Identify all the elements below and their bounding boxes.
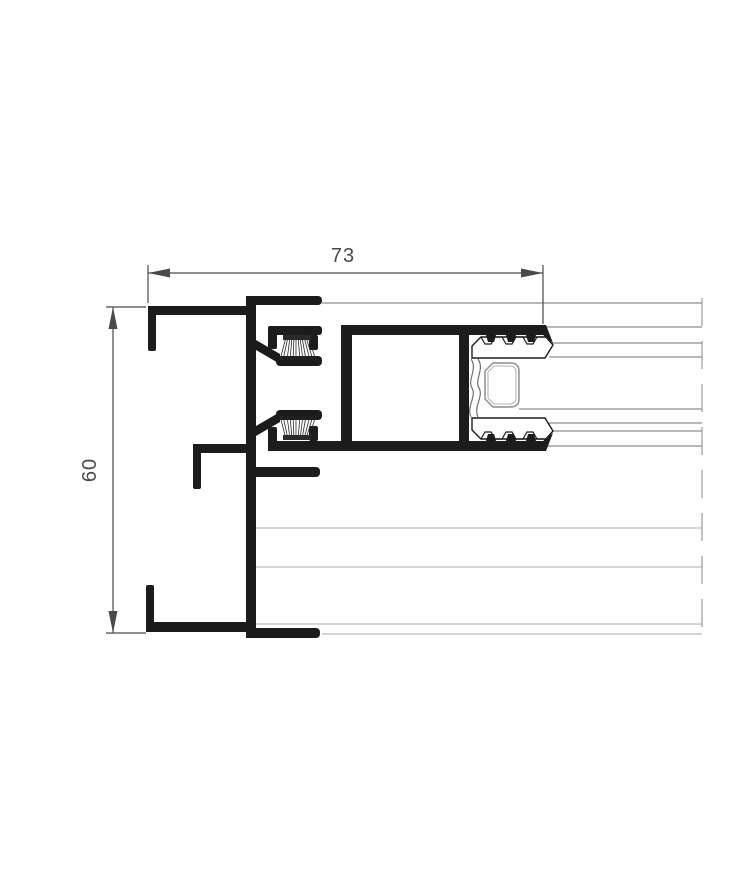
sash-top-channel-left-lip: [268, 326, 277, 349]
dim-height-arrow-top: [109, 307, 118, 329]
chamber-left-wall: [341, 325, 352, 451]
frame-bottom-stub: [252, 628, 320, 638]
chamber-bottom-bar: [268, 441, 545, 451]
glazing-gasket-top: [472, 335, 553, 358]
drawing-canvas: 73 60: [0, 0, 737, 882]
gasket-lip-wave-1: [470, 359, 474, 417]
frame-bottom-flange: [146, 622, 252, 632]
glazing-spacer: [485, 363, 519, 407]
gasket-top-grip-teeth: [486, 335, 536, 342]
chamber-top-bar: [341, 325, 545, 335]
frame-mid-hook-bar: [193, 444, 252, 453]
frame-mid-stub: [252, 467, 320, 477]
gasket-lip-wave-2: [477, 359, 481, 417]
panel-lines: [256, 528, 702, 634]
frame-mid-hook-leg: [193, 444, 201, 489]
frame-cap-bar: [246, 296, 322, 305]
dimension-height: 60: [79, 307, 146, 633]
dim-height-label: 60: [79, 458, 101, 482]
glazing-unit: [470, 335, 553, 441]
chamber-right-wall: [459, 325, 469, 451]
frame-top-flange: [148, 306, 252, 315]
dim-width-label: 73: [331, 245, 355, 267]
dim-width-arrow-left: [148, 269, 170, 278]
gasket-inner-lips: [470, 359, 481, 417]
profile-cross-section-drawing: 73 60: [0, 0, 737, 882]
frame-top-leg: [148, 306, 156, 351]
gasket-bottom-grip-teeth: [486, 434, 536, 441]
dim-height-arrow-bottom: [109, 611, 118, 633]
glazing-gasket-bottom: [472, 418, 553, 441]
frame-main-wall: [246, 296, 256, 638]
dim-width-arrow-right: [521, 269, 543, 278]
